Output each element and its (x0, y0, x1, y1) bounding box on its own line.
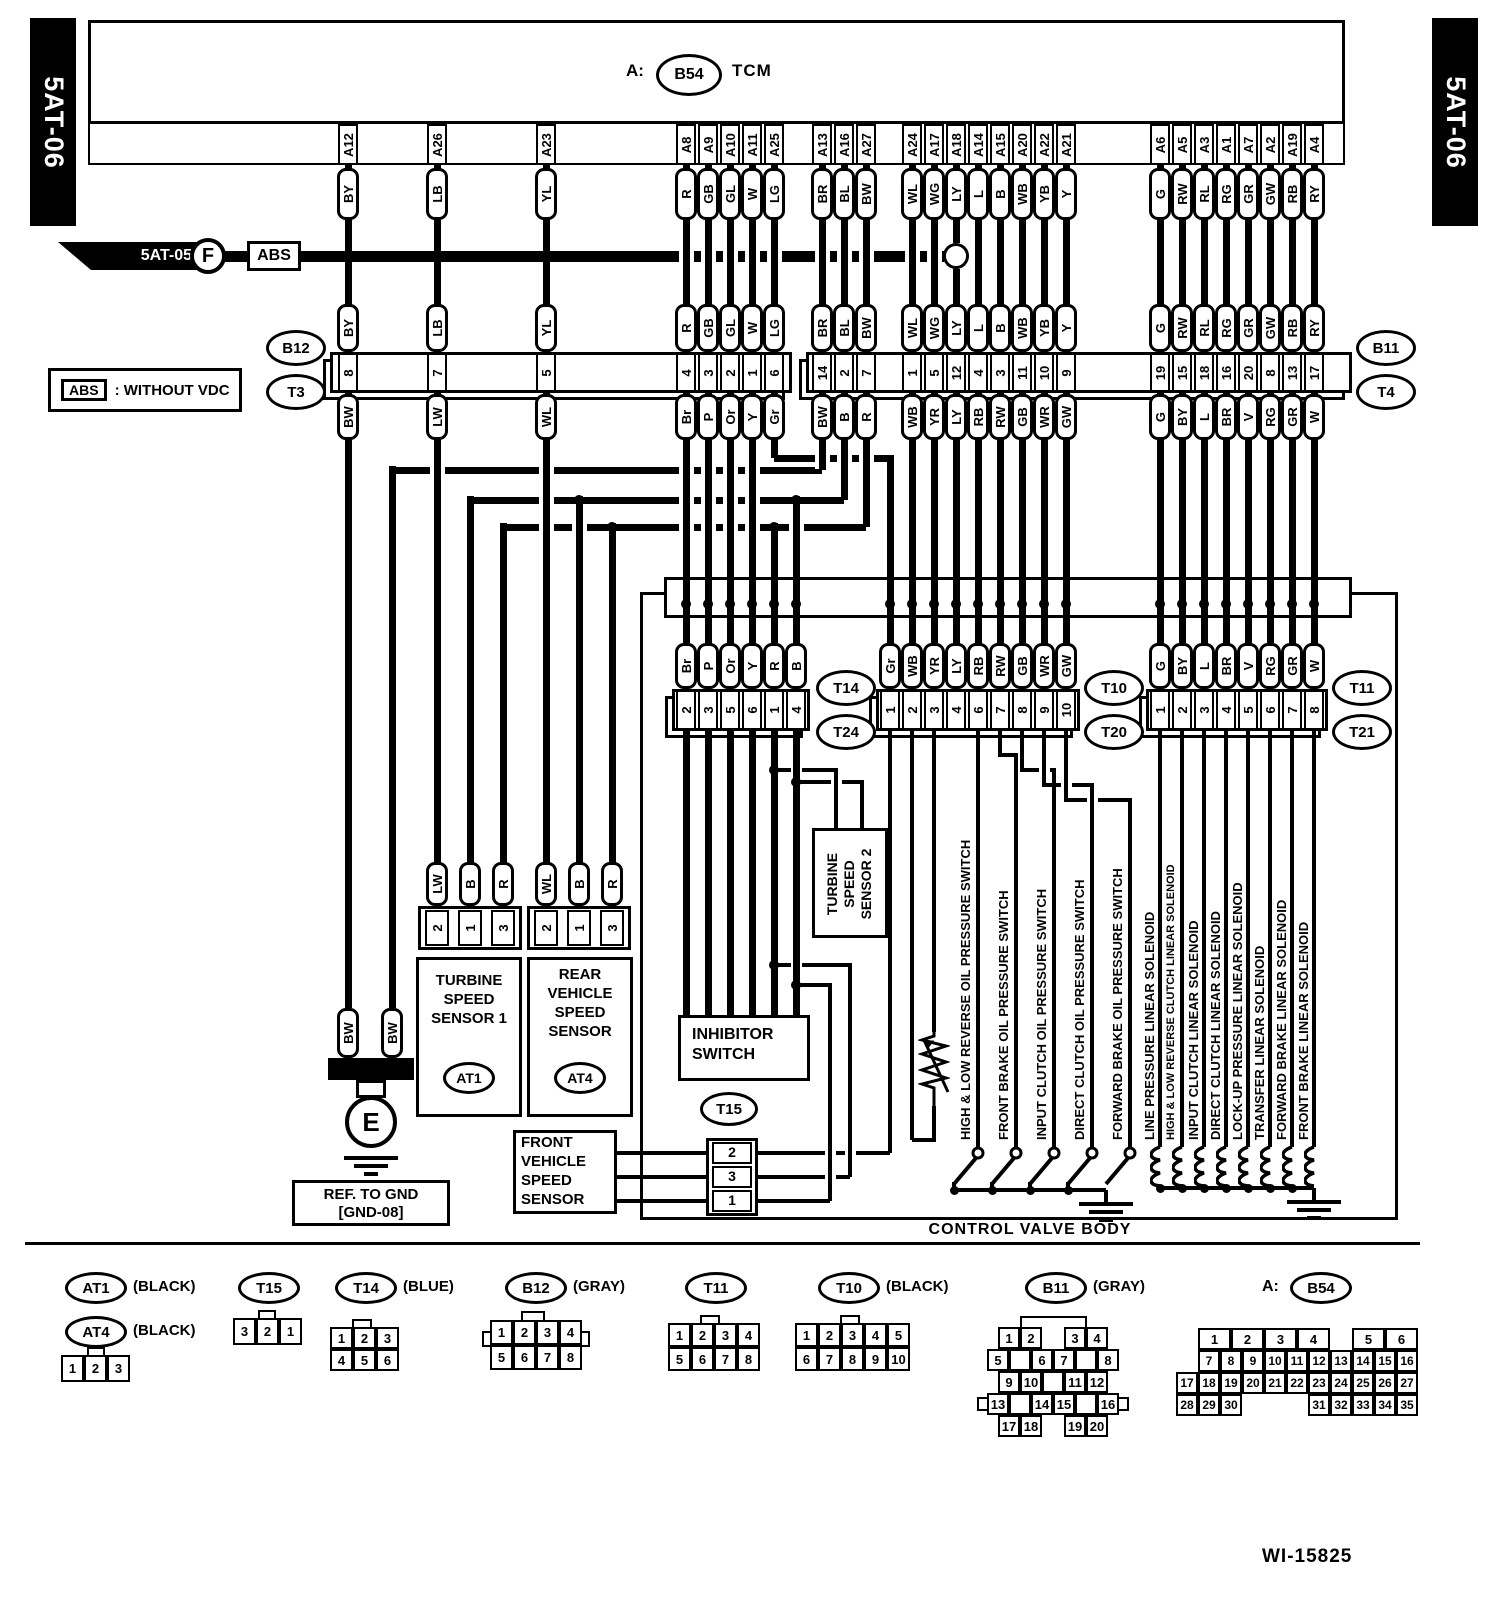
pin-number: 7 (857, 350, 875, 396)
rear-vss-title: REAR (527, 966, 633, 983)
t21-oval: T21 (1332, 714, 1392, 750)
tcm-label: TCM (732, 61, 772, 81)
wire (932, 1106, 936, 1142)
connector-tab (258, 1310, 276, 1318)
legend-at4-cell: 2 (84, 1355, 107, 1382)
wire (774, 963, 850, 967)
t11-oval: T11 (1332, 670, 1392, 706)
wire-color-label: GW (1057, 394, 1075, 440)
rear-vss-title: SPEED (527, 1004, 633, 1021)
solenoid-coil-icon (1150, 1146, 1170, 1188)
wire-color-label: LY (947, 643, 965, 689)
pressure-switch-icon (1060, 1144, 1100, 1188)
ground-icon (1297, 1208, 1331, 1212)
sensor-pin-number: 2 (428, 905, 446, 951)
ground-icon (1307, 1216, 1321, 1220)
wire-color-label: BY (1173, 643, 1191, 689)
junction-dot (769, 522, 779, 532)
pin-number: 10 (1035, 350, 1053, 396)
oil-pressure-switch-label: HIGH & LOW REVERSE OIL PRESSURE SWITCH (957, 838, 974, 1142)
wire (389, 466, 396, 1008)
pin-number: 8 (339, 350, 357, 396)
pin-number: 2 (721, 350, 739, 396)
wire (1312, 1188, 1316, 1200)
wire-color-label: LY (947, 394, 965, 440)
pin-number: 14 (813, 350, 831, 396)
pin-label: A14 (969, 122, 987, 168)
wire-color-label: GW (1057, 643, 1075, 689)
wire-color-label: RW (991, 643, 1009, 689)
legend-connector-color: (BLUE) (403, 1278, 454, 1295)
front-vss-label: SENSOR (521, 1191, 584, 1208)
legend-b11-cell (1075, 1393, 1097, 1415)
wire (705, 731, 712, 1015)
legend-t15-cell: 3 (233, 1318, 256, 1345)
legend-connector-color: (GRAY) (573, 1278, 625, 1295)
wiring-diagram-page: 5AT-06 5AT-06 A: B54 TCM 5AT-05 F ABS AB… (0, 0, 1504, 1610)
wire-color-label: GR (1283, 643, 1301, 689)
wire (796, 780, 862, 784)
pin-number: 5 (925, 350, 943, 396)
legend-b11-cell: 13 (987, 1393, 1009, 1415)
legend-b54-cell: 20 (1242, 1372, 1264, 1394)
wire-color-label: B (835, 394, 853, 440)
legend-t10-cell: 1 (795, 1323, 818, 1347)
legend-t10-cell: 6 (795, 1347, 818, 1371)
wire (998, 731, 1002, 757)
wire-color-label: R (494, 861, 512, 907)
junction-dot (791, 980, 801, 990)
oil-pressure-switch-label: INPUT CLUTCH OIL PRESSURE SWITCH (1033, 887, 1050, 1142)
wire (727, 731, 734, 1015)
pin-number: 3 (1195, 687, 1213, 733)
legend-b11-cell: 14 (1031, 1393, 1053, 1415)
wire-color-label: BW (383, 1010, 401, 1056)
legend-t15-cell: 1 (279, 1318, 302, 1345)
wire-color-label: WB (1013, 171, 1031, 217)
wire-color-label: Y (743, 394, 761, 440)
wire (860, 780, 864, 828)
pin-label: A18 (947, 122, 965, 168)
legend-b12-cell: 8 (559, 1345, 582, 1370)
legend-b11-cell: 19 (1064, 1415, 1086, 1437)
wire (1066, 798, 1130, 802)
solenoid-coil-icon (1216, 1146, 1236, 1188)
pin-number: 8 (1261, 350, 1279, 396)
wire-color-label: YB (1035, 305, 1053, 351)
tcm-connector-id: B54 (674, 66, 703, 84)
solenoid-label: FRONT BRAKE LINEAR SOLENOID (1295, 920, 1312, 1142)
legend-b12-cell: 3 (536, 1320, 559, 1345)
legend-b54-cell: 7 (1198, 1350, 1220, 1372)
ground-joint-block (328, 1058, 414, 1080)
pin-number: 6 (1261, 687, 1279, 733)
rear-vss-title: SENSOR (527, 1023, 633, 1040)
solenoid-coil-icon (1238, 1146, 1258, 1188)
wire (756, 1199, 830, 1203)
wire-color-label: W (743, 171, 761, 217)
solenoid-coil-icon (1194, 1146, 1214, 1188)
wire (543, 393, 550, 908)
pressure-switch-icon (946, 1144, 986, 1188)
connector-side-tab (1119, 1397, 1129, 1411)
wire-color-label: BY (339, 305, 357, 351)
oil-pressure-switch-label: FORWARD BRAKE OIL PRESSURE SWITCH (1109, 866, 1126, 1142)
legend-b54-cell: 2 (1231, 1328, 1264, 1350)
legend-b12-cell: 1 (490, 1320, 513, 1345)
wire-color-label: RW (1173, 305, 1191, 351)
pin-number: 15 (1173, 350, 1191, 396)
pin-number: 2 (903, 687, 921, 733)
pin-label: A13 (813, 122, 831, 168)
wire-color-label: WL (537, 861, 555, 907)
legend-b54-cell: 11 (1286, 1350, 1308, 1372)
legend-b11-cell: 18 (1020, 1415, 1042, 1437)
wire-color-label: RL (1195, 171, 1213, 217)
junction-dot (769, 765, 779, 775)
wire (887, 455, 894, 650)
ground-icon (344, 1156, 398, 1160)
junction-dot (1177, 599, 1187, 609)
legend-t14-cell: 6 (376, 1349, 399, 1371)
wire (224, 251, 247, 262)
pin-label: A2 (1261, 122, 1279, 168)
wire-color-label: L (969, 305, 987, 351)
pin-label: A1 (1217, 122, 1235, 168)
pin-label: A7 (1239, 122, 1257, 168)
legend-t14-cell: 4 (330, 1349, 353, 1371)
legend-t11-cell: 6 (691, 1347, 714, 1371)
junction-dot (681, 599, 691, 609)
connector-tab (352, 1319, 372, 1327)
sensor-pin-number: 3 (494, 905, 512, 951)
wire (1052, 768, 1056, 1149)
t15-oval: T15 (700, 1092, 758, 1126)
wire-color-label: R (677, 171, 695, 217)
pin-number: 1 (1151, 687, 1169, 733)
wire (912, 1138, 934, 1142)
ref-letter: F (202, 245, 214, 268)
legend-b54-cell: 13 (1330, 1350, 1352, 1372)
wire-color-label: YR (925, 643, 943, 689)
wire-color-label: BY (339, 171, 357, 217)
abs-note-tag: ABS (61, 379, 107, 401)
ground-icon (1099, 1218, 1113, 1222)
wire (774, 768, 836, 772)
legend-b11-cell: 7 (1053, 1349, 1075, 1371)
ref-letter-circle: F (190, 238, 226, 274)
legend-b11-cell: 5 (987, 1349, 1009, 1371)
legend-b54-cell: 3 (1264, 1328, 1297, 1350)
legend-b11-cell: 6 (1031, 1349, 1053, 1371)
tcm-connector-prefix: A: (626, 61, 644, 81)
legend-connector-color: (BLACK) (133, 1278, 195, 1295)
pin-number: 5 (721, 687, 739, 733)
wire (434, 393, 441, 908)
wire-color-label: R (765, 643, 783, 689)
wire (1268, 731, 1272, 1147)
oil-pressure-switch-label: FRONT BRAKE OIL PRESSURE SWITCH (995, 888, 1012, 1142)
legend-b54-cell: 30 (1220, 1394, 1242, 1416)
wire-color-label: WB (903, 643, 921, 689)
junction-dot (1017, 599, 1027, 609)
legend-t15-oval: T15 (238, 1272, 300, 1304)
sensor-pin-number: 3 (603, 905, 621, 951)
pin-number: 6 (765, 350, 783, 396)
wire-color-label: WL (903, 171, 921, 217)
pin-number: 12 (947, 350, 965, 396)
atf-thermistor-icon (918, 1030, 950, 1108)
wire-color-label: RG (1217, 171, 1235, 217)
front-vss-label: SPEED (521, 1172, 572, 1189)
legend-b54-cell: 15 (1374, 1350, 1396, 1372)
abs-tag: ABS (257, 247, 291, 265)
ground-icon (1079, 1202, 1133, 1206)
wire (1090, 783, 1094, 1149)
legend-b54-cell: 22 (1286, 1372, 1308, 1394)
wire-color-label: GB (1013, 643, 1031, 689)
legend-t11-cell: 1 (668, 1323, 691, 1347)
wire-color-label: GR (1283, 394, 1301, 440)
wire-color-label: B (991, 305, 1009, 351)
wire (932, 731, 936, 1032)
junction-dot (885, 599, 895, 609)
legend-at4-oval: AT4 (65, 1316, 127, 1348)
junction-dot (791, 495, 801, 505)
rear-vss-title: VEHICLE (527, 985, 633, 1002)
wire (756, 1175, 850, 1179)
legend-b12-oval: B12 (505, 1272, 567, 1304)
wire (1202, 731, 1206, 1147)
connector-side-tab (582, 1331, 590, 1347)
wire (1224, 731, 1228, 1147)
legend-t11-cell: 8 (737, 1347, 760, 1371)
wire-color-label: LG (765, 305, 783, 351)
wire-color-label: RW (991, 394, 1009, 440)
wire (1246, 731, 1250, 1147)
pin-number: 1 (743, 350, 761, 396)
t15-pin-number: 2 (712, 1144, 752, 1160)
pin-number: 5 (1239, 687, 1257, 733)
wire-color-label: B (461, 861, 479, 907)
wire-color-label: RB (1283, 171, 1301, 217)
legend-b54-cell: 31 (1308, 1394, 1330, 1416)
legend-b54-cell: 35 (1396, 1394, 1418, 1416)
page-tag-right-label: 5AT-06 (1440, 76, 1471, 169)
wire-color-label: Or (721, 643, 739, 689)
t3-oval: T3 (266, 374, 326, 410)
wire-color-label: BL (835, 305, 853, 351)
wire-color-label: WR (1035, 394, 1053, 440)
solenoid-coil-icon (1260, 1146, 1280, 1188)
pin-number: 4 (1217, 687, 1235, 733)
wire-color-label: Or (721, 394, 739, 440)
pin-number: 17 (1305, 350, 1323, 396)
junction-dot (747, 599, 757, 609)
legend-t11-cell: 4 (737, 1323, 760, 1347)
ground-icon (1287, 1200, 1341, 1204)
legend-b54-cell: 33 (1352, 1394, 1374, 1416)
wire (1014, 753, 1018, 1149)
t10-oval: T10 (1084, 670, 1144, 706)
wire-color-label: Y (1057, 171, 1075, 217)
wire-color-label: LY (947, 305, 965, 351)
wire-color-label: WG (925, 171, 943, 217)
pin-label: A4 (1305, 122, 1323, 168)
legend-b11-cell: 15 (1053, 1393, 1075, 1415)
wire-color-label: WL (537, 394, 555, 440)
pin-number: 11 (1013, 350, 1031, 396)
pin-label: A8 (677, 122, 695, 168)
legend-b11-cell (1042, 1371, 1064, 1393)
solenoid-coil-icon (1304, 1146, 1324, 1188)
pin-number: 5 (537, 350, 555, 396)
legend-t14-cell: 5 (353, 1349, 376, 1371)
junction-dot (769, 960, 779, 970)
wire-color-label: BR (813, 305, 831, 351)
wire-color-label: YR (925, 394, 943, 440)
wire (683, 731, 690, 1015)
legend-b54-cell: 24 (1330, 1372, 1352, 1394)
wire-color-label: Gr (881, 643, 899, 689)
ground-icon (354, 1164, 388, 1168)
legend-b54-cell: 25 (1352, 1372, 1374, 1394)
ref-arrow: 5AT-05 (58, 242, 208, 270)
pin-number: 16 (1217, 350, 1235, 396)
b11-oval: B11 (1356, 330, 1416, 366)
pin-label: A12 (339, 122, 357, 168)
wire-color-label: BL (835, 171, 853, 217)
legend-t10-cell: 3 (841, 1323, 864, 1347)
pin-number: 2 (835, 350, 853, 396)
pin-label: A9 (699, 122, 717, 168)
pin-number: 3 (991, 350, 1009, 396)
t14-oval: T14 (816, 670, 876, 706)
legend-t14-cell: 3 (376, 1327, 399, 1349)
wire-color-label: RB (969, 643, 987, 689)
junction-dot (929, 599, 939, 609)
wire-color-label: BR (1217, 394, 1235, 440)
legend-t10-cell: 10 (887, 1347, 910, 1371)
pin-label: A23 (537, 122, 555, 168)
legend-b54-cell: 18 (1198, 1372, 1220, 1394)
solenoid-label: FORWARD BRAKE LINEAR SOLENOID (1273, 898, 1290, 1142)
sensor-pin-number: 2 (537, 905, 555, 951)
pin-number: 3 (925, 687, 943, 733)
pin-label: A17 (925, 122, 943, 168)
wire-color-label: B (991, 171, 1009, 217)
wire-color-label: BR (813, 171, 831, 217)
pin-label: A20 (1013, 122, 1031, 168)
wire-color-label: RY (1305, 171, 1323, 217)
legend-b54-oval: B54 (1290, 1272, 1352, 1304)
wire (467, 496, 474, 908)
legend-t10-cell: 2 (818, 1323, 841, 1347)
rear-vss-tag: AT4 (554, 1062, 606, 1094)
wire-color-label: LW (428, 394, 446, 440)
page-tag-left-label: 5AT-06 (38, 76, 69, 169)
pin-number: 6 (743, 687, 761, 733)
wire-color-label: GB (699, 305, 717, 351)
ground-icon (1089, 1210, 1123, 1214)
legend-b12-cell: 6 (513, 1345, 536, 1370)
wire (888, 731, 892, 1153)
connector-tab (87, 1347, 105, 1355)
legend-b11-cell (1009, 1349, 1031, 1371)
pin-number: 13 (1283, 350, 1301, 396)
wire-color-label: GR (1239, 305, 1257, 351)
pin-label: A21 (1057, 122, 1075, 168)
wire (470, 497, 844, 504)
control-valve-body-label: CONTROL VALVE BODY (880, 1221, 1180, 1239)
connector-tab (700, 1315, 720, 1323)
junction-dot (1199, 599, 1209, 609)
wire-color-label: BY (1173, 394, 1191, 440)
wire-color-label: Y (1057, 305, 1075, 351)
wire (793, 496, 800, 650)
legend-b11-cell: 10 (1020, 1371, 1042, 1393)
junction-dot (1221, 599, 1231, 609)
legend-connector-color: (BLACK) (886, 1278, 948, 1295)
junction-dot (1061, 599, 1071, 609)
wire-color-label: RB (969, 394, 987, 440)
pin-label: A15 (991, 122, 1009, 168)
legend-b11-cell: 20 (1086, 1415, 1108, 1437)
pin-number: 7 (991, 687, 1009, 733)
legend-connector-color: (GRAY) (1093, 1278, 1145, 1295)
wire (500, 523, 507, 908)
wire-color-label: L (1195, 643, 1213, 689)
legend-t11-cell: 2 (691, 1323, 714, 1347)
wire-color-label: RG (1261, 394, 1279, 440)
t24-oval: T24 (816, 714, 876, 750)
connector-tab (521, 1311, 545, 1320)
pin-number: 8 (1305, 687, 1323, 733)
pin-number: 6 (969, 687, 987, 733)
tcm-connector-oval: B54 (656, 54, 722, 96)
wire (609, 523, 616, 908)
legend-b54-prefix: A: (1262, 1278, 1279, 1296)
pin-label: A16 (835, 122, 853, 168)
junction-dot (725, 599, 735, 609)
legend-b54-cell: 6 (1385, 1328, 1418, 1350)
wire-color-label: BW (857, 171, 875, 217)
pin-number: 4 (969, 350, 987, 396)
pin-label: A26 (428, 122, 446, 168)
wire (1042, 731, 1046, 787)
wire-color-label: GW (1261, 305, 1279, 351)
legend-t11-oval: T11 (685, 1272, 747, 1304)
wire-color-label: GR (1239, 171, 1257, 217)
wire-color-label: RB (1283, 305, 1301, 351)
legend-b11-cell (1009, 1393, 1031, 1415)
legend-b11-cell: 9 (998, 1371, 1020, 1393)
inhibitor-switch-label: INHIBITOR (692, 1026, 773, 1044)
solenoid-label: LINE PRESSURE LINEAR SOLENOID (1141, 910, 1158, 1142)
legend-b11-oval: B11 (1025, 1272, 1087, 1304)
turbine-sensor1-title: SENSOR 1 (416, 1010, 522, 1027)
wire-color-label: RW (1173, 171, 1191, 217)
wire-color-label: G (1151, 643, 1169, 689)
legend-b54-cell: 8 (1220, 1350, 1242, 1372)
pin-number: 7 (428, 350, 446, 396)
legend-b11-cell: 3 (1064, 1327, 1086, 1349)
legend-at4-cell: 1 (61, 1355, 84, 1382)
wire-color-label: V (1239, 643, 1257, 689)
pin-number: 1 (903, 350, 921, 396)
wire-color-label: Y (743, 643, 761, 689)
wire-color-label: BW (813, 394, 831, 440)
